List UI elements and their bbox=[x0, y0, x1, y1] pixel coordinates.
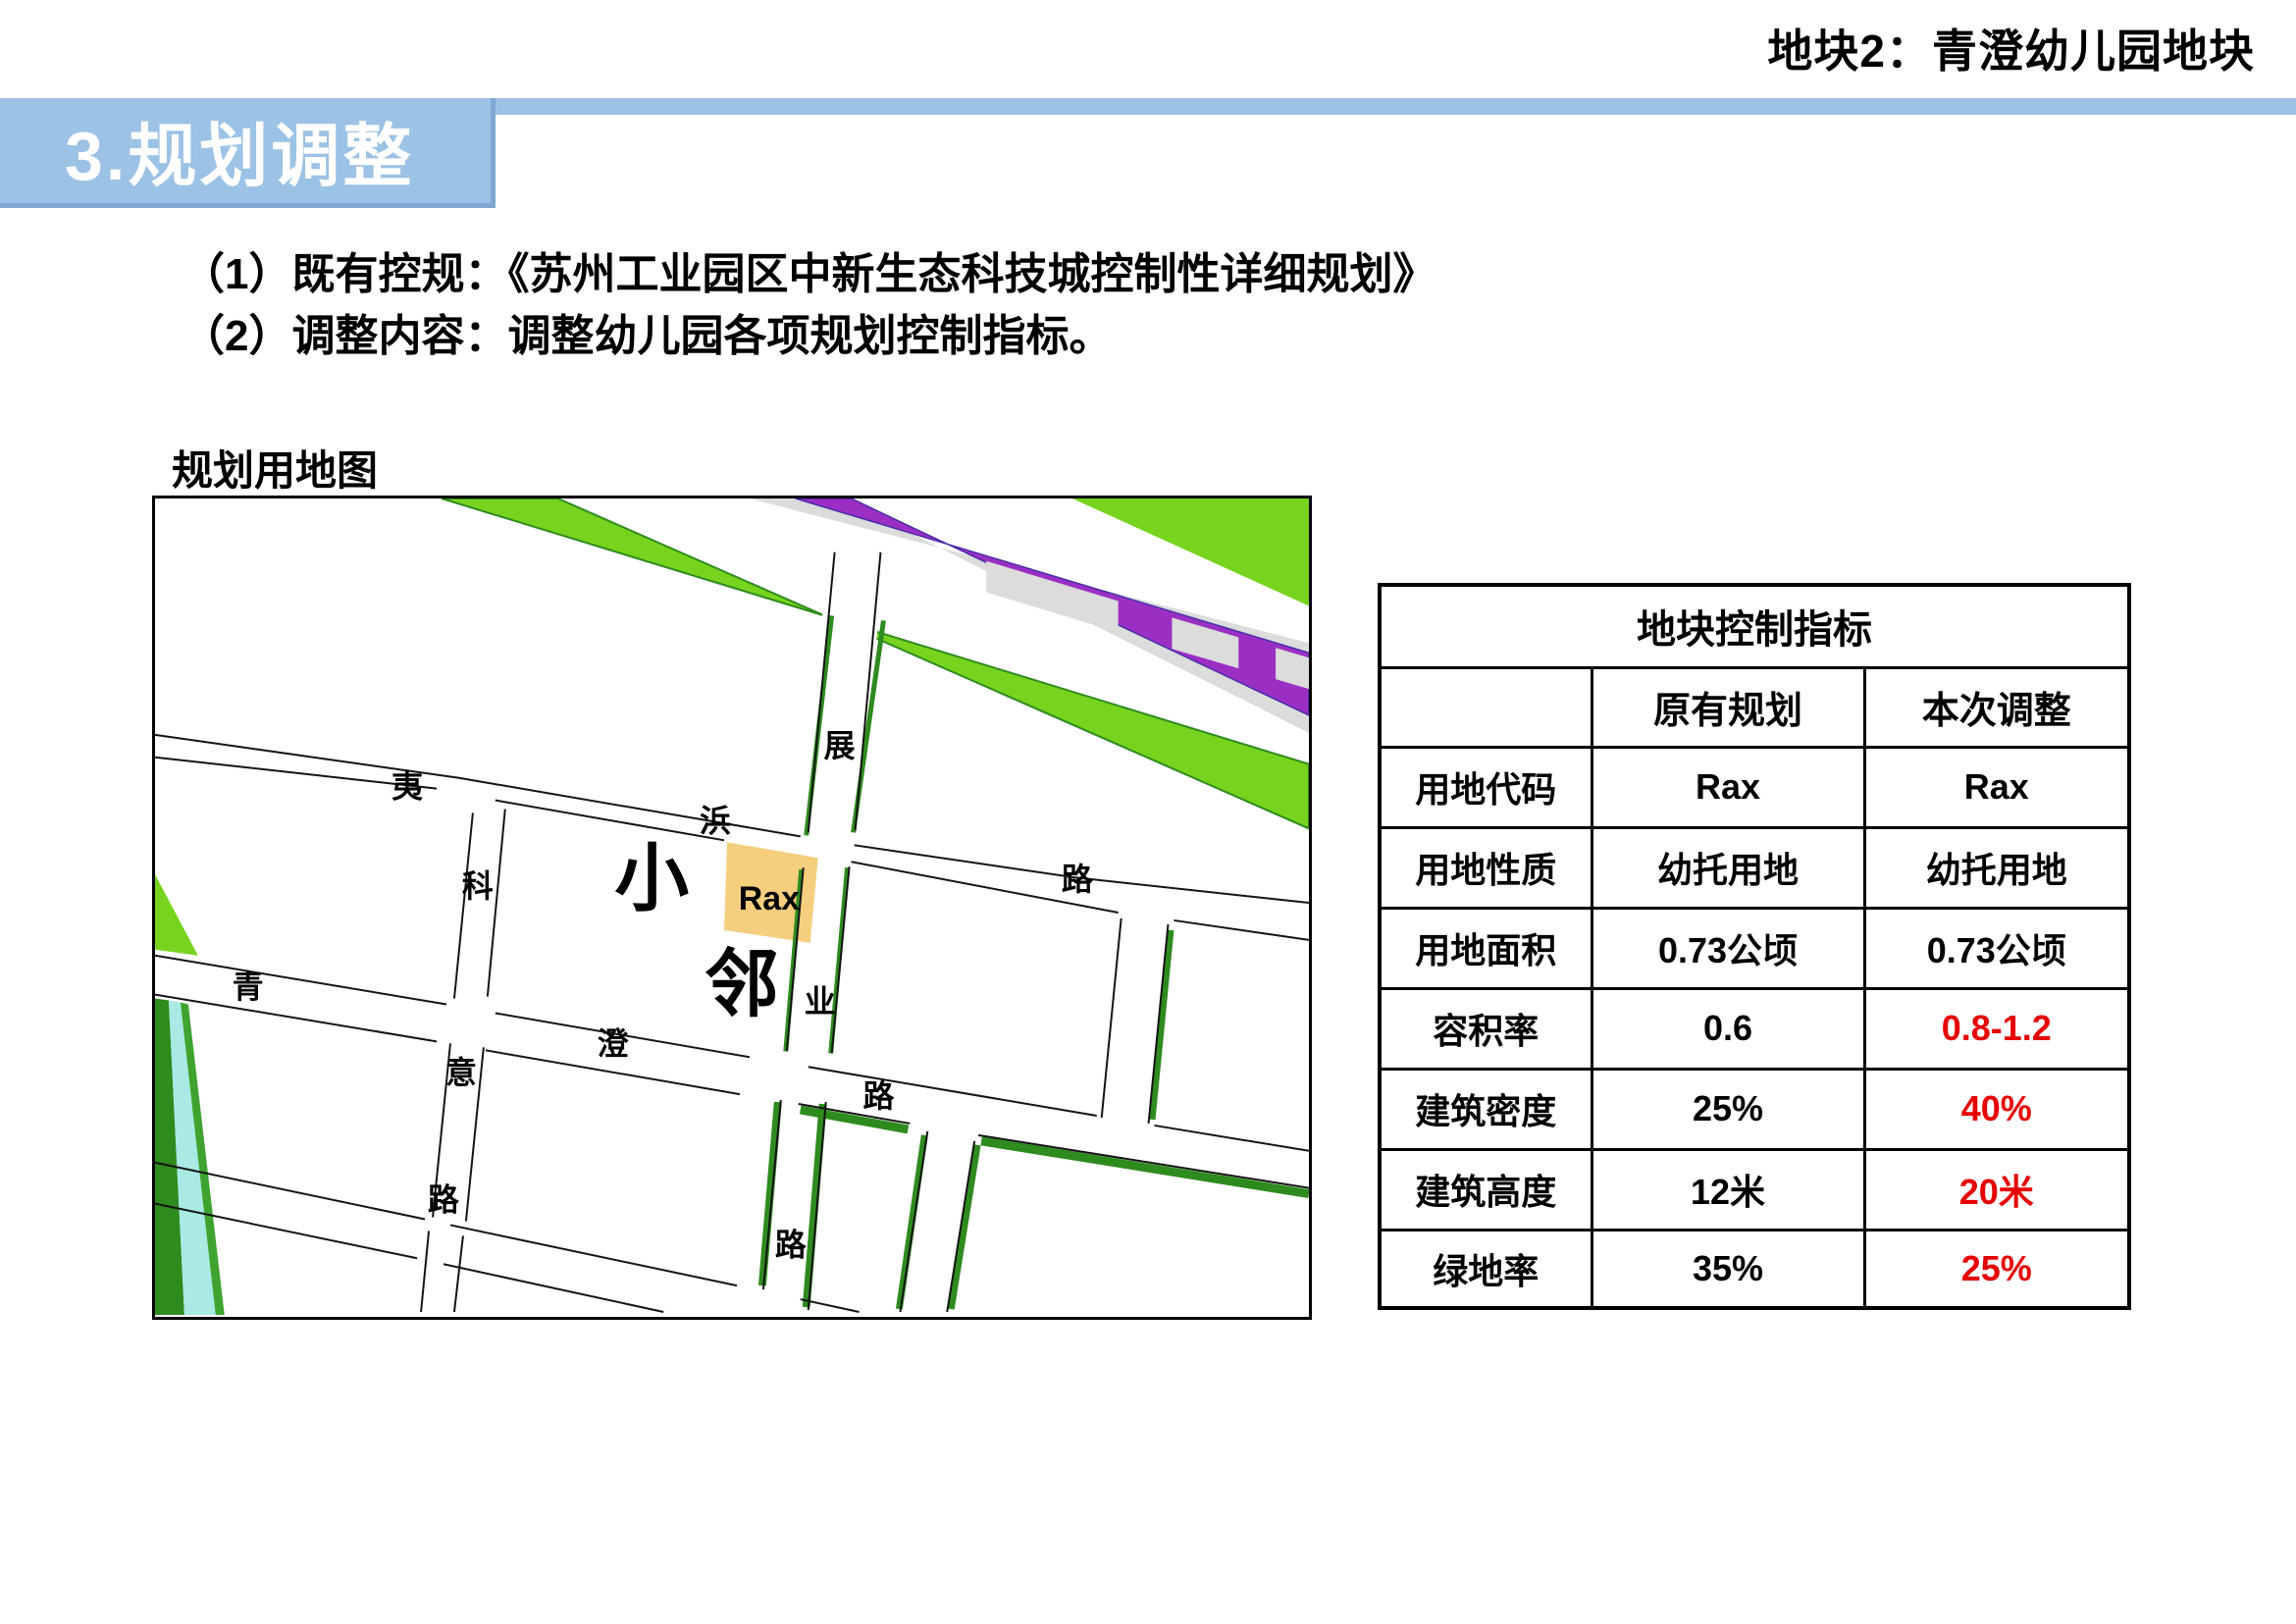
greenbelt-corner bbox=[1072, 498, 1309, 605]
table-row: 用地面积0.73公顷0.73公顷 bbox=[1380, 908, 2129, 988]
slide-label: 地块2：青澄幼儿园地块 bbox=[1767, 16, 2255, 80]
map-road-label: 路 bbox=[775, 1227, 807, 1262]
rax-parcel-label: Rax bbox=[739, 880, 800, 917]
cell-adjusted: 40% bbox=[1864, 1069, 2129, 1149]
row-label: 用地性质 bbox=[1380, 827, 1592, 908]
row-label: 建筑密度 bbox=[1380, 1069, 1592, 1149]
map-road-label: 夷 bbox=[391, 769, 423, 805]
body-text: （1）既有控规：《苏州工业园区中新生态科技城控制性详细规划》 （2）调整内容：调… bbox=[182, 243, 1435, 367]
cell-original: Rax bbox=[1592, 747, 1864, 827]
planning-map: 夷浜路展科青澄路意路业路小邻Rax bbox=[152, 496, 1312, 1320]
cell-adjusted: 20米 bbox=[1864, 1149, 2129, 1230]
table-corner-cell bbox=[1380, 667, 1592, 747]
map-road-label: 澄 bbox=[597, 1025, 629, 1061]
map-road-label: 青 bbox=[233, 969, 264, 1005]
road-south-north bbox=[155, 1163, 860, 1312]
map-labels: 夷浜路展科青澄路意路业路小邻Rax bbox=[233, 728, 1093, 1263]
map-road-label: 意 bbox=[445, 1055, 477, 1090]
row-label: 容积率 bbox=[1380, 988, 1592, 1069]
cell-adjusted: 0.73公顷 bbox=[1864, 908, 2129, 988]
map-road-label: 路 bbox=[1062, 862, 1093, 897]
map-road-label: 浜 bbox=[700, 803, 731, 838]
body-line-1: （1）既有控规：《苏州工业园区中新生态科技城控制性详细规划》 bbox=[182, 243, 1435, 305]
map-caption: 规划用地图 bbox=[172, 438, 378, 498]
map-road-label: 展 bbox=[824, 728, 856, 763]
table-row: 建筑高度12米20米 bbox=[1380, 1149, 2129, 1230]
row-label: 建筑高度 bbox=[1380, 1149, 1592, 1230]
cell-adjusted: 幼托用地 bbox=[1864, 827, 2129, 908]
cell-original: 0.6 bbox=[1592, 988, 1864, 1069]
table-row: 用地性质幼托用地幼托用地 bbox=[1380, 827, 2129, 908]
map-road-label: 业 bbox=[805, 984, 836, 1020]
map-road-label: 小 bbox=[614, 838, 689, 921]
cell-original: 25% bbox=[1592, 1069, 1864, 1149]
cell-adjusted: 0.8-1.2 bbox=[1864, 988, 2129, 1069]
map-road-label: 路 bbox=[863, 1078, 895, 1114]
table-row: 容积率0.60.8-1.2 bbox=[1380, 988, 2129, 1069]
planning-map-svg: 夷浜路展科青澄路意路业路小邻Rax bbox=[155, 498, 1309, 1317]
road-lines bbox=[155, 552, 1309, 1312]
table-row: 绿地率35%25% bbox=[1380, 1230, 2129, 1308]
section-title-block: 3.规划调整 bbox=[0, 98, 496, 208]
section-title: 3.规划调整 bbox=[0, 101, 414, 200]
corridor-dash bbox=[986, 561, 1119, 633]
table-title: 地块控制指标 bbox=[1380, 585, 2129, 667]
row-label: 用地面积 bbox=[1380, 908, 1592, 988]
col-header-original: 原有规划 bbox=[1592, 667, 1864, 747]
body-line-2: （2）调整内容：调整幼儿园各项规划控制指标。 bbox=[182, 305, 1435, 367]
row-label: 绿地率 bbox=[1380, 1230, 1592, 1308]
cell-original: 35% bbox=[1592, 1230, 1864, 1308]
cell-original: 0.73公顷 bbox=[1592, 908, 1864, 988]
left-green-wedge bbox=[155, 874, 198, 956]
map-road-label: 邻 bbox=[704, 943, 779, 1026]
table-row: 用地代码RaxRax bbox=[1380, 747, 2129, 827]
cell-original: 幼托用地 bbox=[1592, 827, 1864, 908]
col-header-adjusted: 本次调整 bbox=[1864, 667, 2129, 747]
map-road-label: 路 bbox=[428, 1182, 459, 1218]
control-indicator-table: 地块控制指标 原有规划 本次调整 用地代码RaxRax用地性质幼托用地幼托用地用… bbox=[1378, 583, 2131, 1310]
cell-adjusted: Rax bbox=[1864, 747, 2129, 827]
road-east-vertical-1 bbox=[1102, 918, 1169, 1124]
map-road-label: 科 bbox=[462, 868, 494, 904]
row-label: 用地代码 bbox=[1380, 747, 1592, 827]
cell-adjusted: 25% bbox=[1864, 1230, 2129, 1308]
table-row: 建筑密度25%40% bbox=[1380, 1069, 2129, 1149]
road-south-south bbox=[155, 1204, 663, 1312]
cell-original: 12米 bbox=[1592, 1149, 1864, 1230]
